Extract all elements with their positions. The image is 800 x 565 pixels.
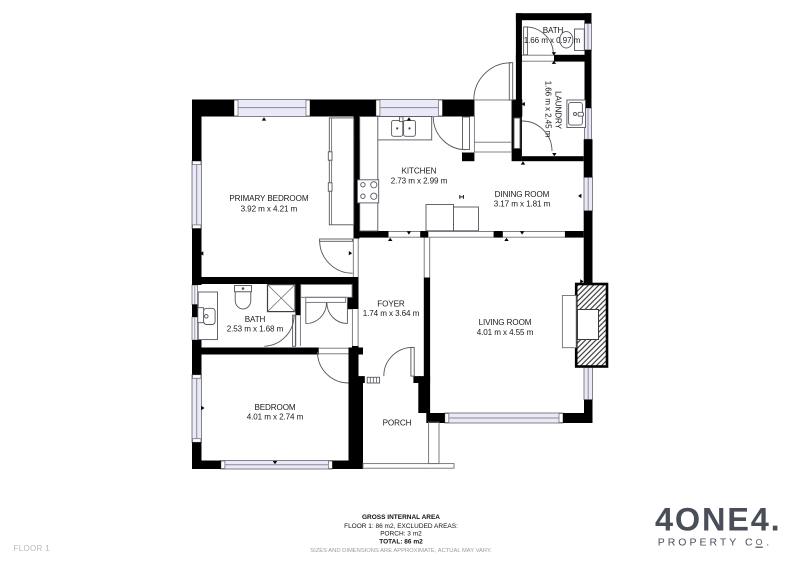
svg-text:DINING ROOM: DINING ROOM (495, 190, 550, 199)
svg-text:LIVING ROOM: LIVING ROOM (479, 318, 532, 327)
svg-text:FLOOR 1: FLOOR 1 (14, 544, 51, 553)
svg-text:4.01 m x 4.55 m: 4.01 m x 4.55 m (477, 328, 534, 337)
svg-text:GROSS INTERNAL AREA: GROSS INTERNAL AREA (362, 514, 440, 521)
svg-text:PORCH: 3 m2: PORCH: 3 m2 (380, 530, 422, 537)
svg-text:4ONE4.: 4ONE4. (655, 502, 781, 538)
svg-text:1.66 m x 0.97 m: 1.66 m x 0.97 m (524, 36, 581, 45)
svg-text:2.73 m x 2.99 m: 2.73 m x 2.99 m (391, 176, 448, 185)
svg-text:SIZES AND DIMENSIONS ARE APPRO: SIZES AND DIMENSIONS ARE APPROXIMATE, AC… (310, 548, 492, 554)
svg-text:BATH: BATH (543, 26, 564, 35)
svg-text:O: O (756, 537, 763, 547)
svg-text:BEDROOM: BEDROOM (254, 403, 295, 412)
svg-text:BATH: BATH (245, 315, 266, 324)
svg-text:TOTAL: 86 m2: TOTAL: 86 m2 (379, 539, 423, 546)
svg-text:PORCH: PORCH (383, 419, 412, 428)
svg-text:1.66 m x 2.45 m: 1.66 m x 2.45 m (544, 81, 553, 138)
svg-text:FLOOR 1: 86 m2, EXCLUDED AREAS: FLOOR 1: 86 m2, EXCLUDED AREAS: (344, 523, 458, 530)
svg-text:4.01 m x 2.74 m: 4.01 m x 2.74 m (247, 413, 304, 422)
svg-text:3.92 m x 4.21 m: 3.92 m x 4.21 m (241, 204, 298, 213)
svg-text:.: . (766, 537, 769, 549)
svg-text:1.74 m x 3.64 m: 1.74 m x 3.64 m (363, 309, 420, 318)
svg-text:FOYER: FOYER (377, 299, 405, 308)
svg-text:KITCHEN: KITCHEN (402, 167, 437, 176)
svg-text:PRIMARY BEDROOM: PRIMARY BEDROOM (229, 194, 309, 203)
svg-text:LAUNDRY: LAUNDRY (553, 91, 562, 130)
svg-text:2.53 m x 1.68 m: 2.53 m x 1.68 m (227, 325, 284, 334)
svg-text:PROPERTY C: PROPERTY C (658, 537, 756, 549)
svg-text:3.17 m x 1.81 m: 3.17 m x 1.81 m (494, 200, 551, 209)
